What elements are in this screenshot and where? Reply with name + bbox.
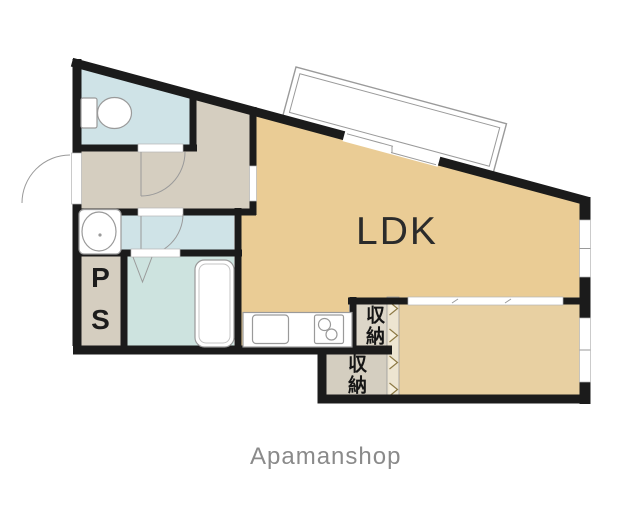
storage-top-label: 収納	[360, 305, 387, 347]
bathtub-icon	[195, 260, 234, 347]
floor-plan-drawing	[0, 0, 640, 512]
storage-bottom-label: 収納	[342, 354, 369, 396]
ldk-room-label: LDK	[356, 210, 438, 254]
ldk-door	[250, 166, 257, 201]
entrance-door	[22, 153, 82, 204]
washbasin-icon	[79, 210, 121, 255]
toilet-icon	[81, 98, 132, 129]
kitchen-sink-icon	[253, 315, 289, 344]
kitchen-counter-icon	[243, 313, 352, 348]
bedroom-sliding-door	[408, 297, 563, 305]
stove-icon	[315, 315, 344, 344]
floor-plan: LDK PS 収納 収納 Apamanshop	[0, 0, 640, 512]
ldk-window	[580, 220, 591, 277]
pipe-space-label: PS	[84, 262, 116, 346]
bedroom-window	[580, 318, 591, 382]
bedroom-floor	[395, 297, 585, 401]
brand-text: Apamanshop	[250, 443, 401, 471]
